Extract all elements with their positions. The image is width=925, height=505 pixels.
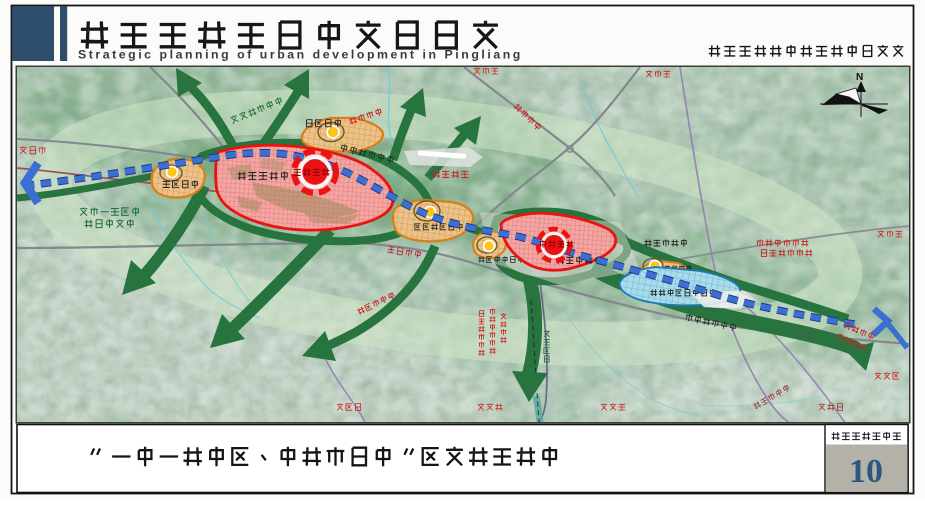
svg-text:10: 10 (849, 453, 883, 490)
svg-text:N: N (856, 72, 863, 83)
svg-text:Strategic planning of urban de: Strategic planning of urban development … (78, 48, 523, 62)
